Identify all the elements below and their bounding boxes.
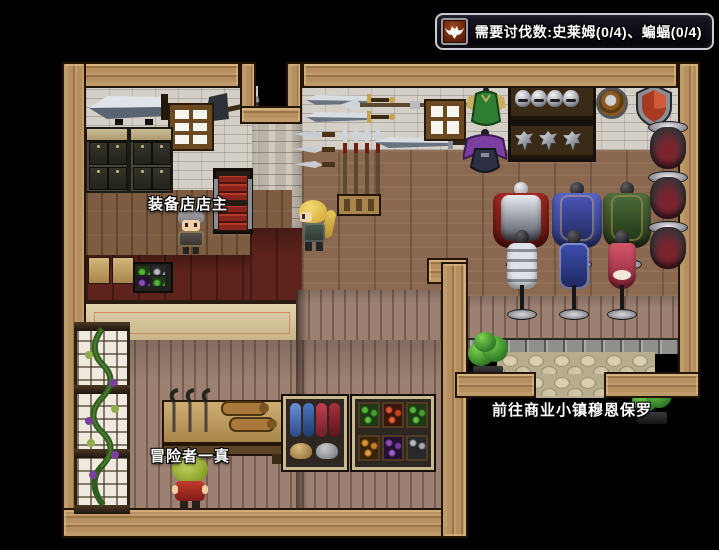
gauntlet-shelf	[508, 123, 596, 162]
frame-alcove-left	[455, 372, 536, 398]
counter-box	[112, 257, 134, 284]
counter-platform-corner	[250, 228, 302, 302]
counter-box	[88, 257, 110, 284]
cabinet-top	[87, 129, 127, 142]
urn-stack	[648, 121, 688, 269]
basket-icon	[316, 443, 338, 459]
basket-icon	[290, 443, 312, 459]
cabinet-top	[131, 129, 171, 142]
exit-hint-label: 前往商业小镇穆恩保罗	[492, 399, 652, 420]
dagger-rack-icon	[293, 128, 339, 172]
frame-notch-bottom	[240, 106, 302, 124]
urn-icon	[648, 121, 688, 169]
produce-stand	[352, 396, 434, 470]
wall-planks-mid	[296, 290, 441, 342]
helmet-shelf	[508, 84, 596, 123]
locker-cabinet	[129, 127, 173, 193]
game-viewport: 装备店店主 冒险者一真 前往商业小镇穆恩保罗 需要讨伐数:史莱姆(0/4)、蝙蝠…	[0, 0, 719, 550]
urn-icon	[648, 171, 688, 219]
player-body	[303, 223, 325, 242]
window-bar	[431, 117, 459, 121]
wall-sword-icon	[306, 110, 396, 122]
window-bar	[175, 131, 207, 135]
game-map[interactable]: 装备店店主 冒险者一真	[62, 55, 700, 538]
urn-icon	[648, 221, 688, 269]
window-bar	[175, 119, 207, 123]
window-bars	[175, 110, 207, 144]
adventurer-label: 冒险者一真	[150, 445, 230, 466]
quest-banner-text: 需要讨伐数:史莱姆(0/4)、蝙蝠(0/4)	[475, 22, 702, 42]
frame-divider	[441, 262, 468, 538]
locker-cabinet	[85, 127, 129, 193]
npc-shopkeeper[interactable]	[176, 208, 206, 254]
display-case	[133, 262, 173, 293]
purple-armor-icon	[463, 129, 507, 177]
green-garment-icon	[466, 87, 506, 129]
frame-alcove-right	[604, 372, 700, 398]
fabric-stand	[283, 396, 347, 470]
quest-banner: 需要讨伐数:史莱姆(0/4)、蝙蝠(0/4)	[435, 13, 714, 50]
mannequin-blue-outfit	[550, 230, 598, 322]
right-window	[426, 101, 464, 139]
left-window	[170, 105, 212, 149]
round-buckler-icon	[596, 87, 628, 119]
whips-and-boots-icon	[166, 388, 284, 440]
frame-top-right	[302, 62, 678, 88]
shopkeeper-label: 装备店店主	[148, 193, 228, 214]
shopkeeper-body	[178, 231, 204, 247]
frame-top-left	[62, 62, 240, 88]
player-character[interactable]	[298, 198, 338, 262]
plant-trellis	[74, 322, 130, 514]
mannequin-pink-dress	[599, 230, 645, 322]
adventurer-body	[175, 481, 205, 501]
bat-monster-icon	[441, 18, 468, 45]
mannequin-silver-armor	[498, 230, 546, 322]
